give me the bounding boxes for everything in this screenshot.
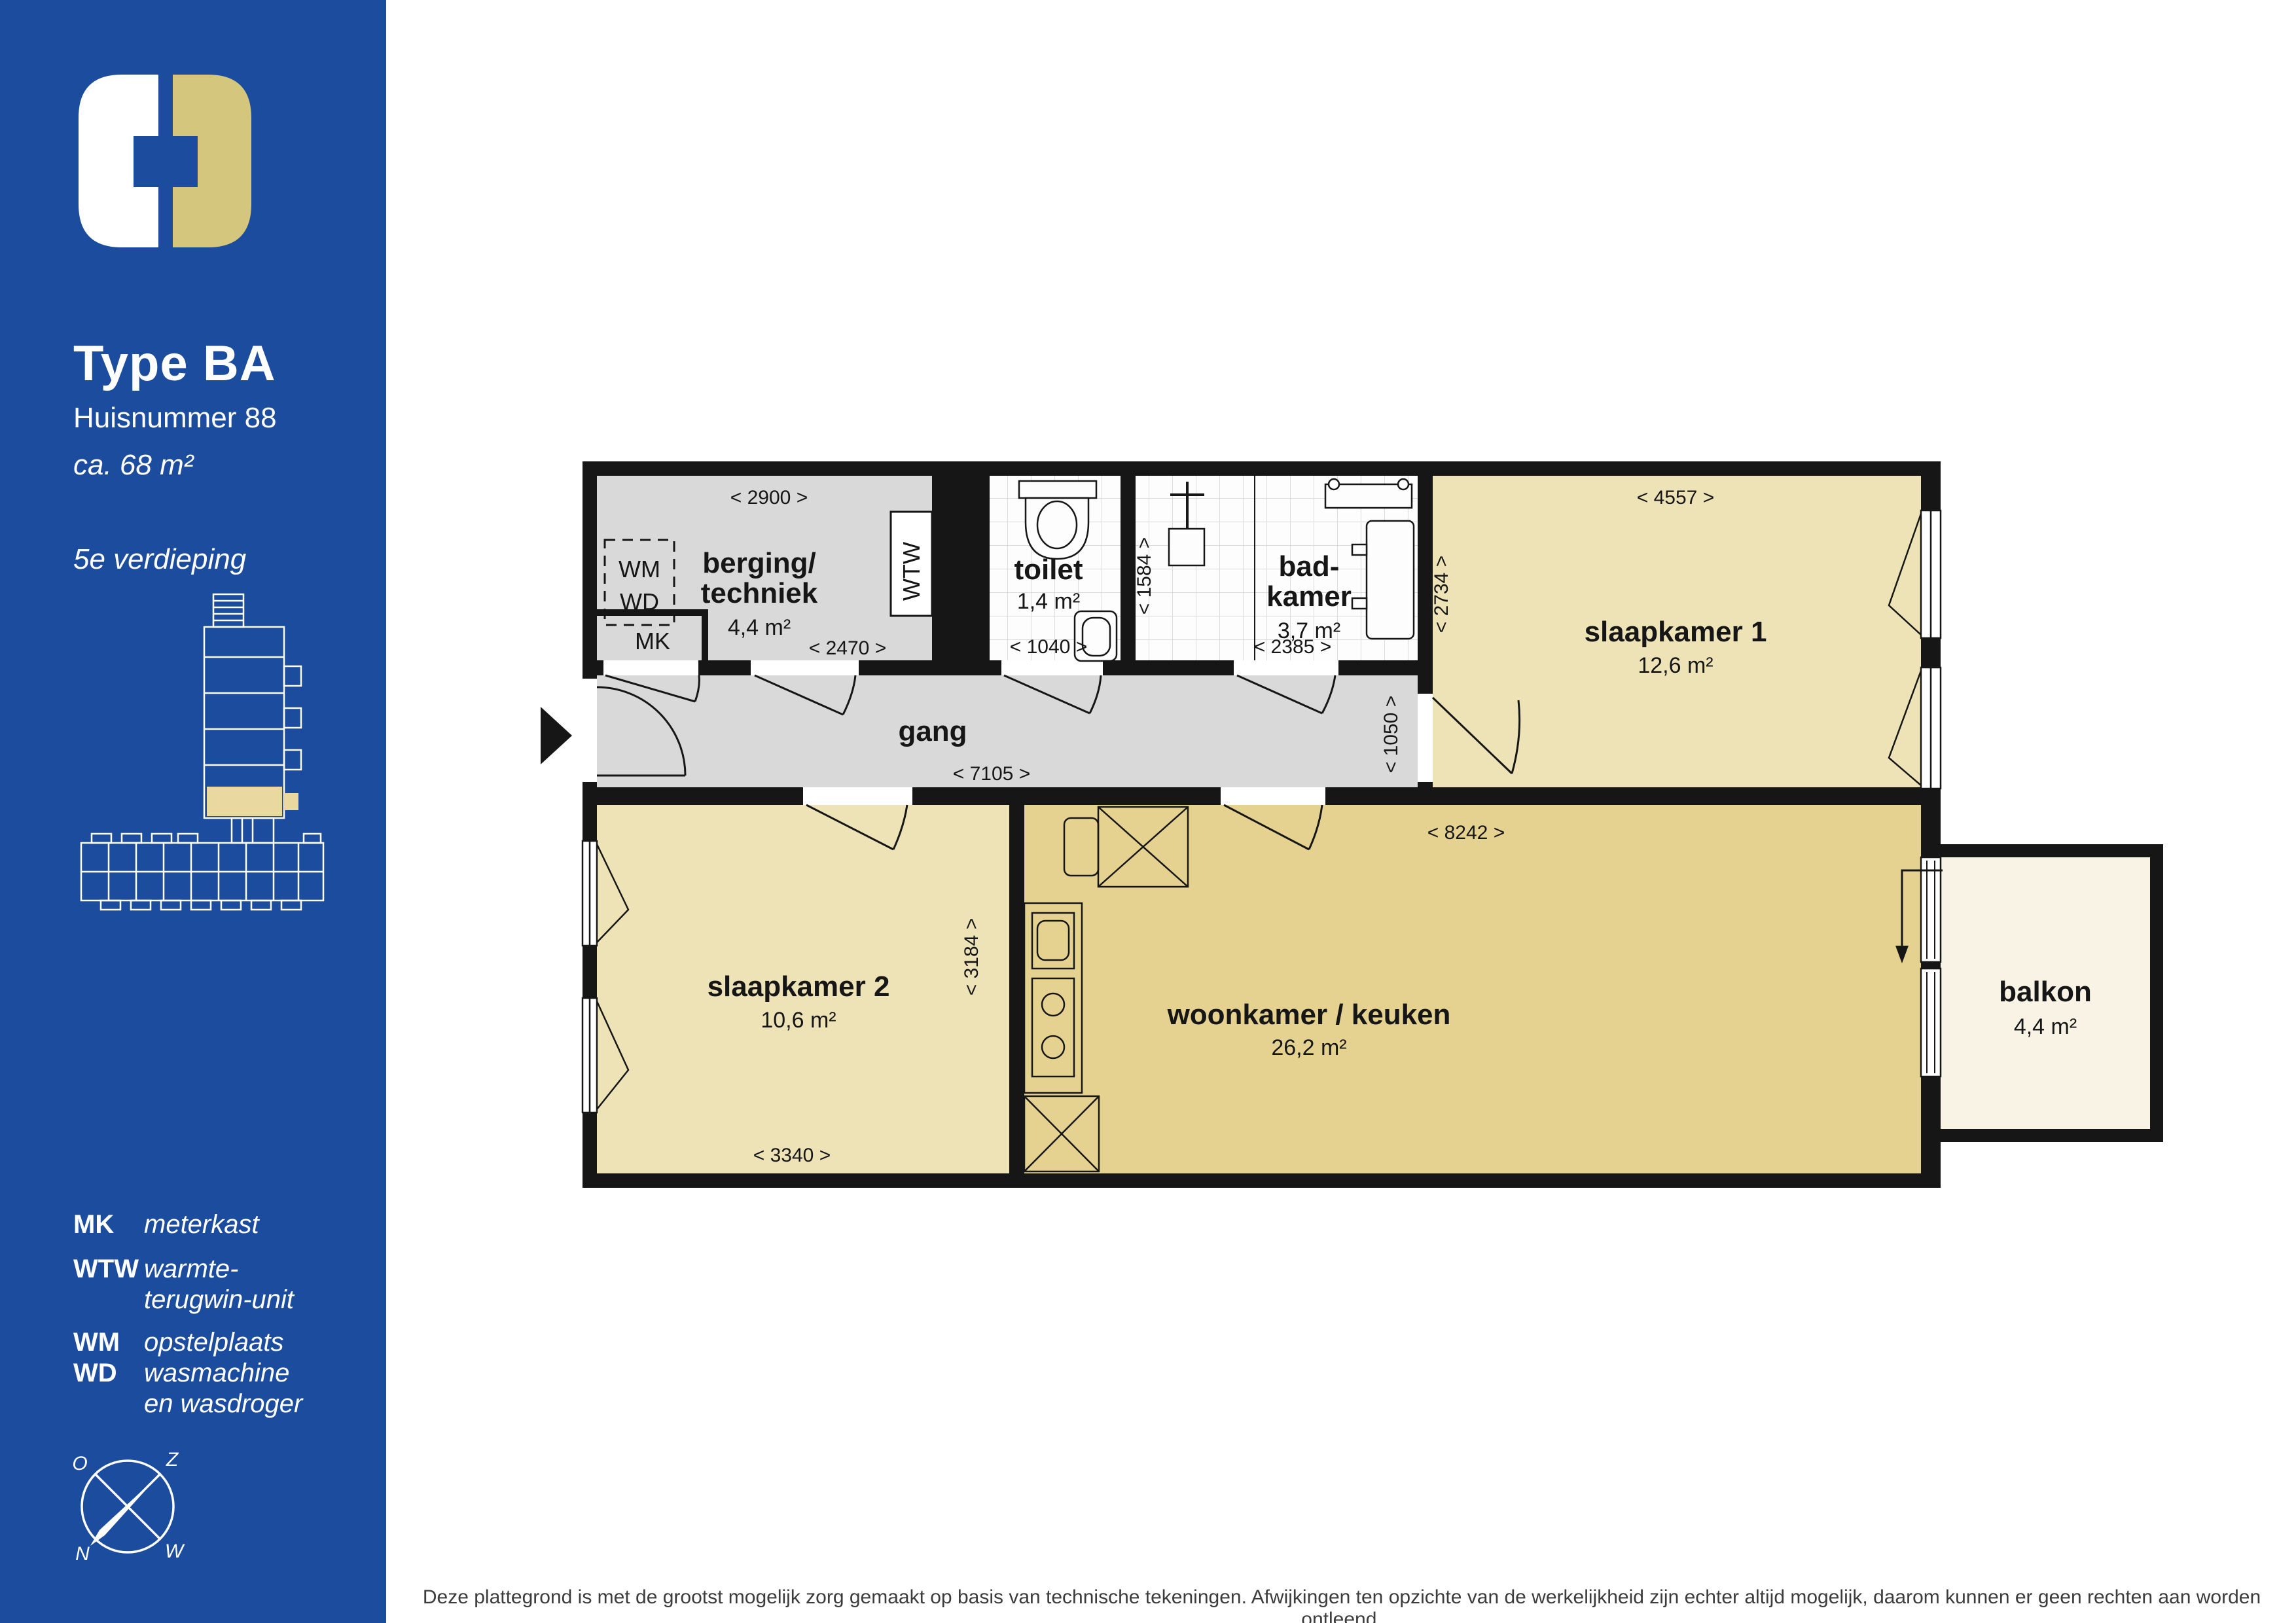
brand-logo-icon bbox=[77, 73, 253, 249]
room-slaapkamer2-name: slaapkamer 2 bbox=[708, 971, 890, 1003]
compass-west-label: W bbox=[165, 1541, 185, 1562]
entrance-arrow-icon bbox=[541, 707, 572, 764]
room-toilet-name: toilet bbox=[1014, 554, 1083, 586]
dim-slaapkamer2-bottom: < 3340 > bbox=[753, 1145, 831, 1166]
room-balkon-area: 4,4 m² bbox=[2014, 1014, 2077, 1039]
minimap-unit-highlight bbox=[207, 787, 282, 816]
room-badkamer-name1: bad- bbox=[1279, 550, 1340, 582]
legend-wtw-abbr: WTW bbox=[73, 1254, 144, 1285]
legend-wtw-label: warmte- terugwin-unit bbox=[144, 1254, 294, 1315]
dim-berging-bottom: < 2470 > bbox=[809, 637, 886, 659]
dim-badkamer-left: < 1584 > bbox=[1134, 537, 1155, 615]
compass-south-label: Z bbox=[166, 1449, 179, 1471]
legend-wmwd-abbr: WM WD bbox=[73, 1327, 144, 1389]
legend-row-mk: MKmeterkast bbox=[73, 1209, 374, 1240]
dim-badkamer-bottom: < 2385 > bbox=[1254, 636, 1331, 658]
room-berging-name2: techniek bbox=[701, 577, 818, 609]
dim-berging-top: < 2900 > bbox=[730, 487, 808, 508]
legend-row-wtw: WTWwarmte- terugwin-unit bbox=[73, 1254, 374, 1315]
room-gang-name: gang bbox=[898, 715, 967, 747]
legend-mk-label: meterkast bbox=[144, 1209, 259, 1240]
dim-slaapkamer2-right: < 3184 > bbox=[961, 918, 982, 995]
wtw-label: WTW bbox=[898, 542, 925, 601]
legend-row-wmwd: WM WDopstelplaats wasmachine en wasdroge… bbox=[73, 1327, 374, 1419]
wm-label: WM bbox=[619, 556, 660, 582]
room-toilet-area: 1,4 m² bbox=[1017, 589, 1080, 614]
sidebar: Type BA Huisnummer 88 ca. 68 m² 5e verdi… bbox=[0, 0, 386, 1623]
dim-gang-right: < 1050 > bbox=[1380, 696, 1402, 773]
legend-mk-abbr: MK bbox=[73, 1209, 144, 1240]
compass-needle bbox=[90, 1474, 160, 1546]
dim-toilet: < 1040 > bbox=[1010, 636, 1087, 658]
legend-wmwd-label: opstelplaats wasmachine en wasdroger bbox=[144, 1327, 302, 1419]
room-berging-name1: berging/ bbox=[702, 547, 816, 579]
room-badkamer-name2: kamer bbox=[1266, 580, 1352, 613]
compass-north-label: N bbox=[75, 1543, 90, 1565]
room-slaapkamer2-area: 10,6 m² bbox=[761, 1008, 836, 1033]
compass: O Z N W bbox=[65, 1448, 190, 1572]
dim-slaapkamer1-left: < 2734 > bbox=[1431, 556, 1452, 633]
total-area: ca. 68 m² bbox=[73, 449, 193, 482]
floor-plan: < 2900 > WM WD berging/ techniek 4,4 m² … bbox=[537, 452, 2212, 1198]
dim-gang-bottom: < 7105 > bbox=[953, 763, 1030, 785]
room-slaapkamer1-area: 12,6 m² bbox=[1638, 653, 1713, 678]
dim-slaapkamer1-top: < 4557 > bbox=[1637, 487, 1714, 508]
compass-east-label: O bbox=[72, 1453, 87, 1474]
page: Type BA Huisnummer 88 ca. 68 m² 5e verdi… bbox=[0, 0, 2296, 1623]
dim-woonkamer-top: < 8242 > bbox=[1427, 822, 1505, 844]
house-number: Huisnummer 88 bbox=[73, 402, 277, 435]
room-slaapkamer1-name: slaapkamer 1 bbox=[1585, 616, 1767, 648]
room-balkon-name: balkon bbox=[1999, 976, 2092, 1008]
mk-label: MK bbox=[635, 628, 670, 654]
room-woonkamer-name: woonkamer / keuken bbox=[1167, 999, 1451, 1031]
floor-label: 5e verdieping bbox=[73, 543, 246, 576]
washbasin-icon bbox=[1367, 521, 1414, 639]
room-berging-area: 4,4 m² bbox=[728, 615, 791, 640]
wd-label: WD bbox=[620, 588, 659, 615]
type-title: Type BA bbox=[73, 335, 276, 392]
building-minimap bbox=[71, 584, 332, 911]
room-woonkamer-area: 26,2 m² bbox=[1271, 1035, 1346, 1060]
disclaimer-text: Deze plattegrond is met de grootst mogel… bbox=[406, 1586, 2278, 1623]
